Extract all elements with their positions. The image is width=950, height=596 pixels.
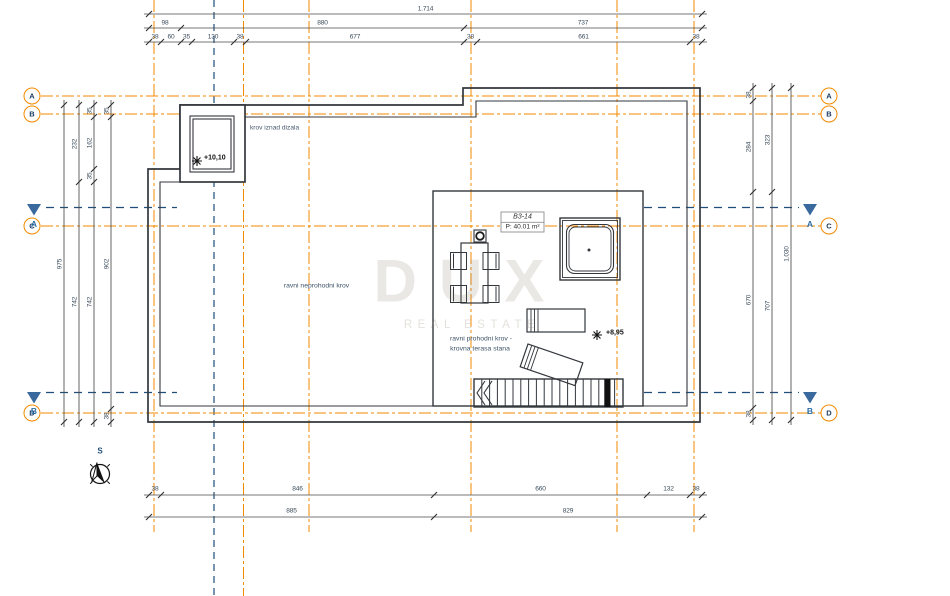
plant-pot xyxy=(474,230,486,242)
dim-left-c2-1: 742 xyxy=(72,297,79,307)
dim-left-c1-0: 975 xyxy=(57,258,64,268)
stairs xyxy=(474,379,623,407)
elevation-marker-terrace xyxy=(592,330,602,340)
grid-letter: A xyxy=(826,92,831,101)
dim-bot-r1-4: 38 xyxy=(693,485,700,492)
grid-bubble-A-right: A xyxy=(821,88,838,105)
dim-top-r3-1: 60 xyxy=(168,33,175,40)
elevation-marker-elevator xyxy=(192,156,202,166)
grid-letter: C xyxy=(826,222,831,231)
dim-right-c1-0: 38 xyxy=(745,91,752,98)
dim-right-c1-3: 38 xyxy=(745,411,752,418)
dim-bot-r1-0: 38 xyxy=(152,485,159,492)
grid-bubble-D-right: D xyxy=(821,405,838,422)
elevation-value-elevator: +10,10 xyxy=(204,154,226,161)
label-walkable-roof-line1: ravni prohodni krov - xyxy=(450,336,512,343)
floor-plan-sheet: DUX REAL ESTATE A B C D A B C D A A B B … xyxy=(0,0,950,596)
dim-bot-r1-3: 132 xyxy=(663,485,673,492)
watermark-subtitle: REAL ESTATE xyxy=(404,319,540,331)
dim-bot-r2-1: 829 xyxy=(563,507,573,514)
dim-left-c4-0: 35 xyxy=(104,108,111,115)
section-label-B-right: B xyxy=(807,406,813,416)
elevator-shaft xyxy=(180,105,245,182)
grid-letter: B xyxy=(29,110,34,119)
dim-bot-r1-1: 846 xyxy=(292,485,302,492)
dim-top-r3-2: 35 xyxy=(183,33,190,40)
grid-letter: D xyxy=(826,409,831,418)
dim-right-c2-0: 323 xyxy=(764,135,771,145)
dim-bot-r1-2: 660 xyxy=(535,485,545,492)
dim-top-r2-1: 880 xyxy=(317,19,327,26)
watermark-logo: DUX xyxy=(374,247,567,316)
north-arrow xyxy=(90,463,110,484)
section-label-A-left: A xyxy=(31,219,37,229)
elevation-value-terrace: +8,95 xyxy=(606,329,624,336)
dim-left-c3-2: 35 xyxy=(87,172,94,179)
dim-top-r3-8: 38 xyxy=(693,33,700,40)
section-label-A-right: A xyxy=(807,219,813,229)
label-roof-over-elevator: krov iznad dizala xyxy=(250,125,299,132)
section-label-B-left: B xyxy=(31,406,37,416)
grid-bubble-B-right: B xyxy=(821,106,838,123)
room-id: B3-14 xyxy=(513,214,532,221)
dim-top-r3-5: 677 xyxy=(350,33,360,40)
grid-bubble-C-right: C xyxy=(821,218,838,235)
grid-letter: A xyxy=(29,92,34,101)
room-area: P: 40.01 m² xyxy=(505,224,539,231)
north-label: S xyxy=(97,447,102,456)
dim-top-r2-0: 98 xyxy=(162,19,169,26)
dim-left-c4-2: 38 xyxy=(104,412,111,419)
dim-top-r3-6: 38 xyxy=(467,33,474,40)
dim-top-r3-4: 38 xyxy=(237,33,244,40)
dim-left-c3-3: 742 xyxy=(87,297,94,307)
dim-left-c4-1: 902 xyxy=(104,258,111,268)
dim-bot-r2-0: 885 xyxy=(286,507,296,514)
skylight xyxy=(560,218,620,280)
dim-left-c3-1: 162 xyxy=(87,138,94,148)
label-non-walkable-roof: ravni neprohodni krov xyxy=(284,283,349,290)
dim-left-c3-0: 35 xyxy=(87,108,94,115)
dim-right-c3-0: 1.030 xyxy=(783,246,790,262)
dim-top-r2-2: 737 xyxy=(578,19,588,26)
grid-bubble-B-left: B xyxy=(24,106,41,123)
dim-right-c1-1: 284 xyxy=(745,141,752,151)
grid-bubble-A-left: A xyxy=(24,88,41,105)
dim-top-r3-3: 130 xyxy=(208,33,218,40)
dim-right-c1-2: 670 xyxy=(745,295,752,305)
grid-letter: B xyxy=(826,110,831,119)
dim-right-c2-1: 707 xyxy=(764,301,771,311)
dim-top-r3-0: 38 xyxy=(152,33,159,40)
dim-left-c2-0: 232 xyxy=(72,138,79,148)
dim-top-total: 1.714 xyxy=(418,5,434,12)
label-walkable-roof-line2: krovna terasa stana xyxy=(450,345,510,352)
dim-top-r3-7: 661 xyxy=(578,33,588,40)
